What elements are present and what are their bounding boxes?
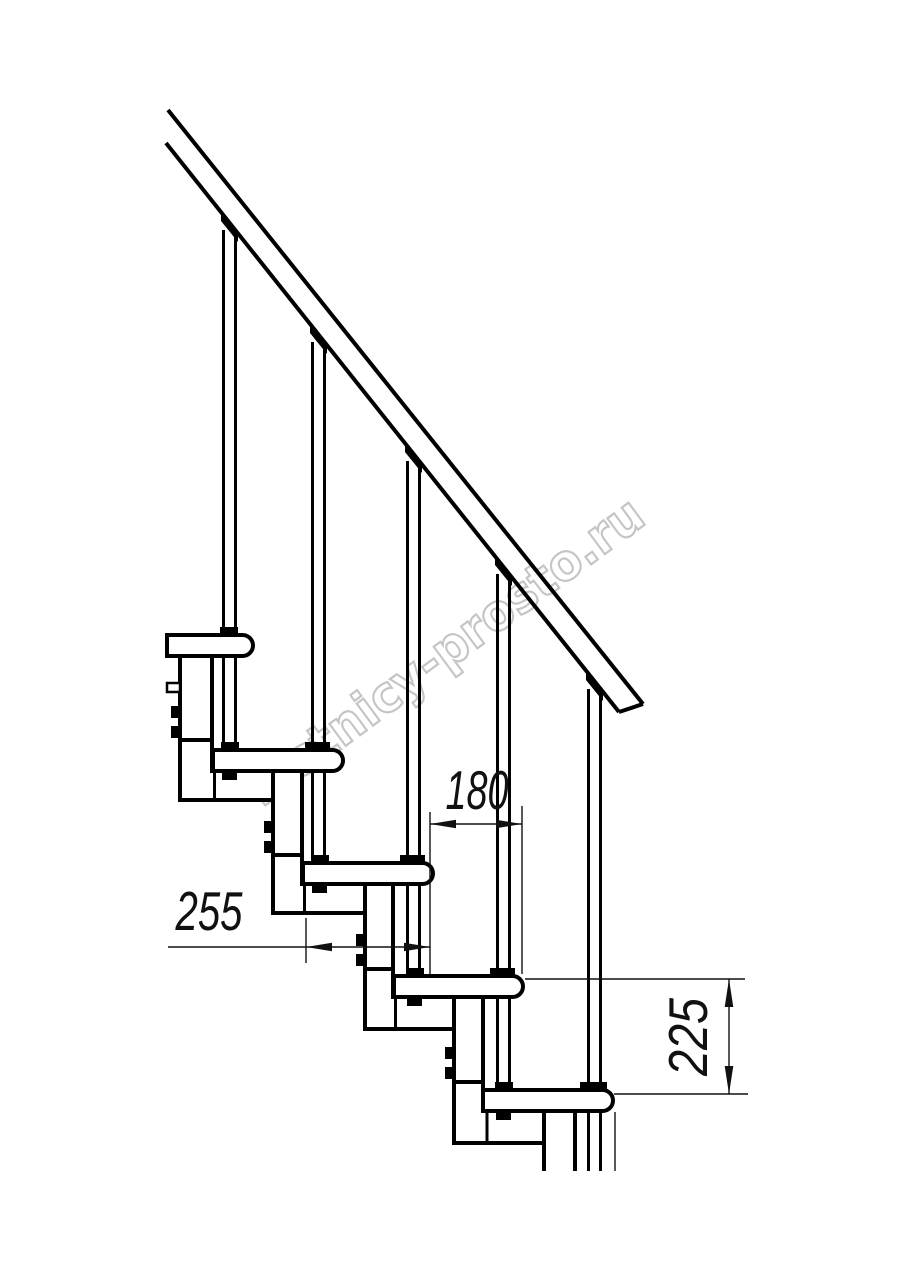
dimension-180-label: 180 <box>446 759 509 821</box>
tread-2 <box>213 750 343 771</box>
tread-4 <box>394 976 523 997</box>
wall-bracket-tab <box>167 683 180 692</box>
handrail <box>166 110 643 712</box>
tread-shoe <box>400 855 425 863</box>
dimension-255-label: 255 <box>175 880 243 942</box>
baluster-3 <box>408 461 420 974</box>
support-module-3 <box>356 884 454 1029</box>
baluster-1 <box>224 230 236 748</box>
tread-shoe <box>221 742 239 750</box>
dimension-225: 225 <box>525 979 748 1094</box>
support-module-1 <box>167 656 273 800</box>
tread-cap <box>496 1112 511 1120</box>
tread-shoe <box>406 968 424 976</box>
dimension-225-label: 225 <box>657 998 719 1077</box>
tread-shoe <box>311 855 329 863</box>
tread-3 <box>303 863 433 884</box>
tread-1 <box>167 635 253 656</box>
tread-shoe <box>305 742 330 750</box>
tread-shoe <box>490 968 515 976</box>
tread-cap <box>407 998 422 1006</box>
handrail-top-edge <box>168 110 643 704</box>
baluster-4 <box>498 574 510 1088</box>
tread-shoe <box>220 627 238 635</box>
tread-cap <box>312 885 327 893</box>
tread-5 <box>483 1090 613 1111</box>
tread-shoe <box>495 1082 513 1090</box>
support-module-5 <box>544 1113 575 1171</box>
tread-shoe <box>580 1082 607 1090</box>
handrail-bottom-edge <box>166 143 619 712</box>
drawing-page: lestnicy-prosto.ru lestnicy-prosto.ru <box>0 0 914 1280</box>
tread-cap <box>222 772 237 780</box>
staircase-technical-drawing: lestnicy-prosto.ru lestnicy-prosto.ru <box>0 0 914 1280</box>
handrail-end-cap <box>619 704 643 712</box>
support-module-4 <box>445 997 544 1143</box>
